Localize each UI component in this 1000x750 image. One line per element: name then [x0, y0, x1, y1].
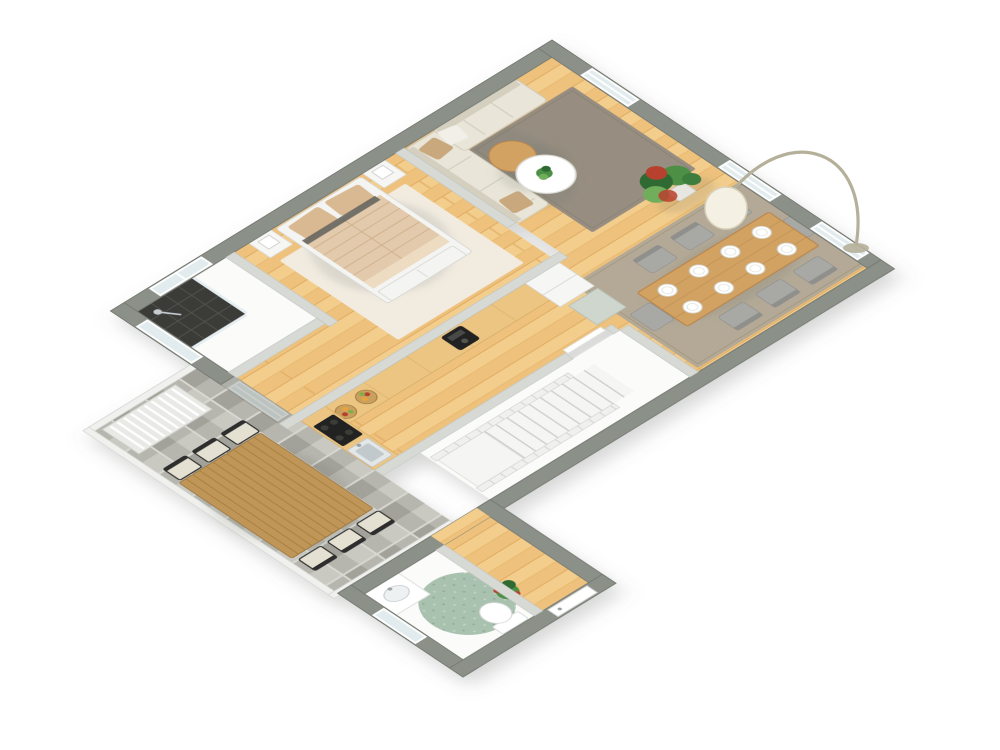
floorplan-render-canvas: [0, 0, 1000, 750]
floorplan-3d-scene: [0, 0, 1000, 750]
apartment: [3, 40, 1000, 681]
lamp-globe-shade: [705, 187, 747, 229]
